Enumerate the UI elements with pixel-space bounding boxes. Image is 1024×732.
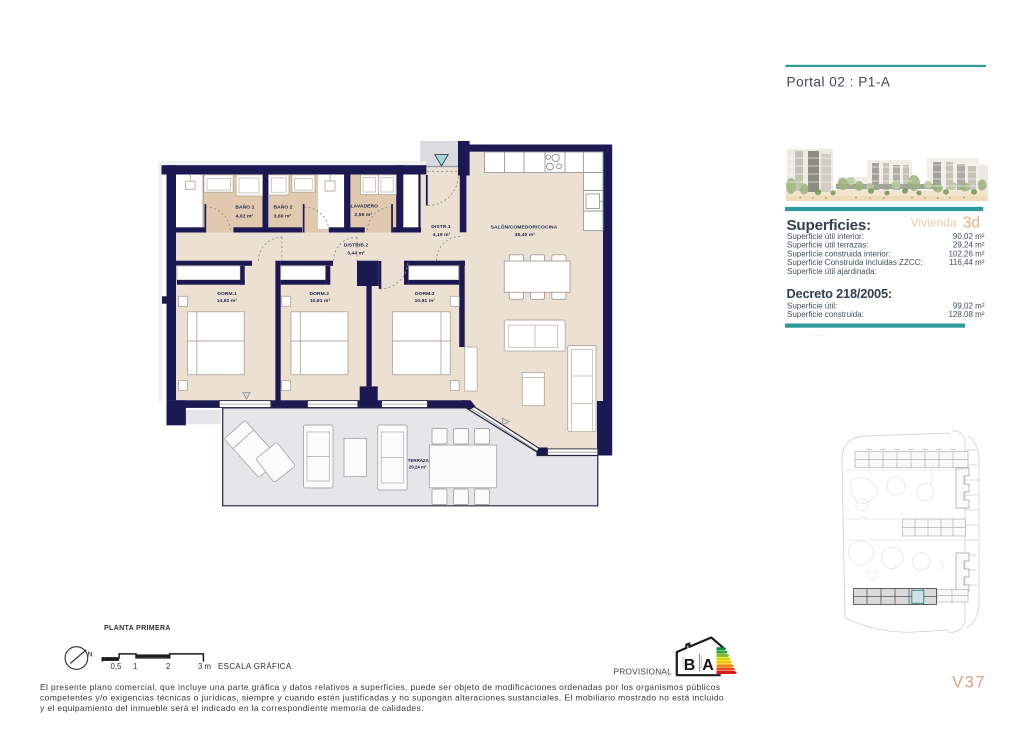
svg-text:3,60 m²: 3,60 m² — [274, 213, 292, 219]
svg-text:116,44 m²: 116,44 m² — [949, 258, 985, 267]
svg-text:128,08 m²: 128,08 m² — [948, 310, 984, 319]
svg-text:N: N — [88, 652, 93, 659]
svg-text:4,02 m²: 4,02 m² — [236, 213, 254, 219]
svg-text:Superficie útil terrazas:: Superficie útil terrazas: — [787, 241, 868, 250]
svg-text:2: 2 — [166, 662, 170, 671]
svg-text:PROVISIONAL: PROVISIONAL — [614, 667, 673, 677]
svg-text:10,81 m²: 10,81 m² — [310, 298, 331, 304]
svg-text:Decreto 218/2005:: Decreto 218/2005: — [787, 286, 892, 301]
svg-text:Superficie construida interior: Superficie construida interior: — [787, 249, 891, 258]
svg-text:Portal 02 : P1-A: Portal 02 : P1-A — [787, 75, 891, 90]
svg-text:LAVADERO: LAVADERO — [351, 204, 379, 210]
svg-text:1: 1 — [133, 662, 137, 671]
svg-text:Superficie útil interior:: Superficie útil interior: — [787, 232, 864, 241]
svg-text:3,44 m²: 3,44 m² — [347, 250, 365, 256]
svg-text:ESCALA GRÁFICA: ESCALA GRÁFICA — [218, 662, 292, 671]
svg-text:PLANTA PRIMERA: PLANTA PRIMERA — [104, 624, 171, 632]
svg-text:29,24 m²: 29,24 m² — [953, 241, 985, 250]
svg-text:Superficie construida:: Superficie construida: — [787, 310, 864, 319]
svg-text:0,5: 0,5 — [111, 662, 123, 671]
svg-text:V37: V37 — [952, 674, 986, 692]
svg-text:Vivienda: Vivienda — [911, 216, 957, 230]
svg-text:BAÑO 2: BAÑO 2 — [273, 203, 292, 210]
svg-text:BAÑO 1: BAÑO 1 — [235, 203, 254, 210]
svg-text:14,92 m²: 14,92 m² — [217, 298, 238, 304]
svg-text:A: A — [702, 657, 714, 674]
svg-text:El presente plano comercial, q: El presente plano comercial, que incluye… — [40, 682, 720, 692]
svg-text:Superficie Construida incluida: Superficie Construida incluidas ZZCC: — [787, 258, 923, 267]
svg-text:TERRAZA: TERRAZA — [408, 458, 430, 463]
svg-text:B: B — [684, 657, 696, 674]
svg-text:DORM.1: DORM.1 — [217, 291, 237, 297]
svg-text:DISTR.1: DISTR.1 — [431, 224, 451, 230]
svg-text:102,26 m²: 102,26 m² — [948, 249, 984, 258]
svg-text:99,02 m²: 99,02 m² — [953, 301, 985, 310]
svg-text:90,02 m²: 90,02 m² — [953, 232, 985, 241]
svg-text:DISTRIB.2: DISTRIB.2 — [344, 242, 369, 248]
svg-text:y el equipamiento del inmueble: y el equipamiento del inmueble será el i… — [40, 703, 424, 713]
svg-text:29,24 m²: 29,24 m² — [409, 464, 427, 469]
svg-text:10,81 m²: 10,81 m² — [415, 298, 436, 304]
svg-text:· · - ·: · · - · — [812, 333, 825, 339]
svg-text:4,19 m²: 4,19 m² — [433, 232, 451, 238]
svg-text:DORM.3: DORM.3 — [415, 291, 435, 297]
svg-text:2,55 m²: 2,55 m² — [355, 212, 373, 218]
svg-text:Superficie útil:: Superficie útil: — [787, 301, 837, 310]
svg-text:competentes y/o exigencias téc: competentes y/o exigencias técnicas o ju… — [40, 693, 724, 703]
svg-text:DORM.2: DORM.2 — [309, 291, 329, 297]
svg-text:38,40 m²: 38,40 m² — [515, 232, 536, 238]
svg-text:Superficie útil ajardinada:: Superficie útil ajardinada: — [787, 267, 877, 276]
svg-text:3d: 3d — [963, 215, 980, 232]
svg-text:3 m: 3 m — [198, 662, 211, 671]
